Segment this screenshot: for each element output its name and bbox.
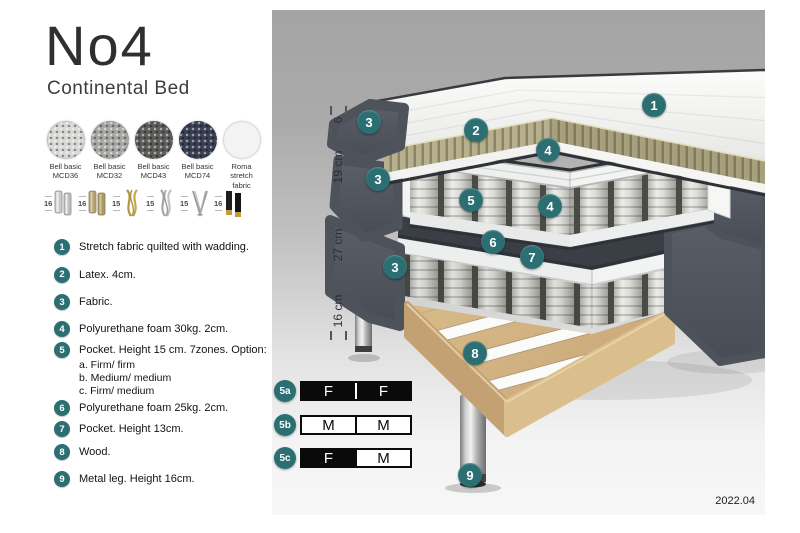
part-description: Fabric. (79, 294, 113, 310)
fabric-swatch-icon (91, 121, 129, 159)
product-title: No4 (45, 18, 154, 74)
part-number-badge: 6 (54, 400, 70, 416)
firmness-badge-5c: 5c (274, 447, 296, 469)
firmness-cell: M (302, 417, 355, 433)
firmness-row-5a: 5a F F (274, 380, 412, 402)
callout-7: 7 (520, 245, 544, 269)
part-item-2: 2 Latex. 4cm. (54, 267, 266, 283)
part-description: Metal leg. Height 16cm. (79, 471, 195, 487)
fabric-swatches: Bell basicMCD36 Bell basicMCD32 Bell bas… (45, 121, 262, 190)
leg-option-3: 15 (112, 188, 146, 218)
fabric-label: Romastretch fabric (221, 162, 262, 190)
firmness-cell: M (357, 450, 410, 466)
firmness-bar-5a: F F (300, 381, 412, 401)
leg-height-label: 15 (112, 199, 120, 208)
part-description: Pocket. Height 15 cm. 7zones. Option: (79, 342, 267, 358)
part-5-option-b: b. Medium/ medium (79, 372, 266, 385)
part-description: Polyurethane foam 25kg. 2cm. (79, 400, 228, 416)
part-number-badge: 9 (54, 471, 70, 487)
firmness-row-5c: 5c F M (274, 447, 412, 469)
part-item-8: 8 Wood. (54, 444, 266, 460)
version-label: 2022.04 (715, 495, 755, 507)
leg-icon-cylinder-chrome (52, 188, 76, 218)
leg-options: 16 16 15 (44, 188, 248, 218)
part-number-badge: 3 (54, 294, 70, 310)
leg-height-label: 16 (214, 199, 222, 208)
fabric-option-mcd32: Bell basicMCD32 (89, 121, 130, 190)
firmness-row-5b: 5b M M (274, 414, 412, 436)
part-item-3: 3 Fabric. (54, 294, 266, 310)
leg-option-5: 15 (180, 188, 214, 218)
dimension-label-19: 19 cm (331, 137, 345, 197)
leg-option-2: 16 (78, 188, 112, 218)
leg-option-4: 15 (146, 188, 180, 218)
part-item-1: 1 Stretch fabric quilted with wadding. (54, 239, 266, 255)
part-item-6: 6 Polyurethane foam 25kg. 2cm. (54, 400, 266, 416)
part-number-badge: 1 (54, 239, 70, 255)
product-subtitle: Continental Bed (47, 78, 190, 100)
dimension-label-16: 16 cm (331, 281, 345, 341)
leg-icon-hairpin (188, 188, 212, 218)
fabric-swatch-icon (135, 121, 173, 159)
callout-8: 8 (463, 341, 487, 365)
part-number-badge: 8 (54, 444, 70, 460)
fabric-swatch-icon (47, 121, 85, 159)
leg-option-1: 16 (44, 188, 78, 218)
part-description: Wood. (79, 444, 111, 460)
leg-height-label: 16 (44, 199, 52, 208)
part-number-badge: 2 (54, 267, 70, 283)
leg-height-label: 15 (146, 199, 154, 208)
callout-5: 5 (459, 188, 483, 212)
leg-height-label: 16 (78, 199, 86, 208)
callout-6: 6 (481, 230, 505, 254)
part-number-badge: 5 (54, 342, 70, 358)
part-5-option-c: c. Firm/ medium (79, 385, 266, 398)
part-5-option-a: a. Firm/ firm (79, 359, 266, 372)
callout-4-lower: 4 (538, 194, 562, 218)
dimension-label-27: 27 cm (331, 215, 345, 275)
part-5-options: a. Firm/ firm b. Medium/ medium c. Firm/… (79, 359, 266, 398)
fabric-swatch-icon (223, 121, 261, 159)
firmness-bar-5b: M M (300, 415, 412, 435)
fabric-option-mcd43: Bell basicMCD43 (133, 121, 174, 190)
fabric-option-mcd74: Bell basicMCD74 (177, 121, 218, 190)
callout-3-top: 3 (357, 110, 381, 134)
fabric-label: Bell basicMCD74 (181, 162, 213, 181)
fabric-label: Bell basicMCD43 (137, 162, 169, 181)
info-panel: No4 Continental Bed Bell basicMCD36 Bell… (0, 0, 272, 533)
fabric-option-mcd36: Bell basicMCD36 (45, 121, 86, 190)
firmness-cell: F (357, 383, 410, 399)
fabric-label: Bell basicMCD36 (49, 162, 81, 181)
leg-icon-twisted-gold (120, 188, 144, 218)
parts-list: 1 Stretch fabric quilted with wadding. 2… (54, 239, 266, 487)
part-description: Latex. 4cm. (79, 267, 136, 283)
firmness-cell: M (357, 417, 410, 433)
callout-3-mid: 3 (366, 167, 390, 191)
callout-3-base: 3 (383, 255, 407, 279)
firmness-bar-5c: F M (300, 448, 412, 468)
firmness-badge-5a: 5a (274, 380, 296, 402)
part-description: Stretch fabric quilted with wadding. (79, 239, 249, 255)
callout-9: 9 (458, 463, 482, 487)
part-number-badge: 4 (54, 321, 70, 337)
part-number-badge: 7 (54, 421, 70, 437)
callout-2: 2 (464, 118, 488, 142)
part-description: Polyurethane foam 30kg. 2cm. (79, 321, 228, 337)
part-item-5: 5 Pocket. Height 15 cm. 7zones. Option: (54, 342, 266, 358)
fabric-swatch-icon (179, 121, 217, 159)
part-description: Pocket. Height 13cm. (79, 421, 184, 437)
part-item-4: 4 Polyurethane foam 30kg. 2cm. (54, 321, 266, 337)
firmness-cell: F (302, 450, 355, 466)
leg-icon-twisted-silver (154, 188, 178, 218)
part-item-9: 9 Metal leg. Height 16cm. (54, 471, 266, 487)
product-sheet: No4 Continental Bed Bell basicMCD36 Bell… (0, 0, 800, 533)
leg-icon-black-brass (222, 188, 246, 218)
part-item-7: 7 Pocket. Height 13cm. (54, 421, 266, 437)
fabric-option-roma: Romastretch fabric (221, 121, 262, 190)
callout-4-upper: 4 (536, 138, 560, 162)
fabric-label: Bell basicMCD32 (93, 162, 125, 181)
diagram-panel: 6 19 cm 27 cm 16 cm 1 2 3 3 3 4 5 4 6 7 … (272, 10, 765, 515)
leg-height-label: 15 (180, 199, 188, 208)
leg-option-6: 16 (214, 188, 248, 218)
bed-cutaway-illustration (272, 10, 765, 515)
leg-icon-cylinder-brass (86, 188, 110, 218)
dimension-tick (328, 199, 348, 208)
firmness-cell: F (302, 383, 355, 399)
callout-1: 1 (642, 93, 666, 117)
firmness-badge-5b: 5b (274, 414, 296, 436)
